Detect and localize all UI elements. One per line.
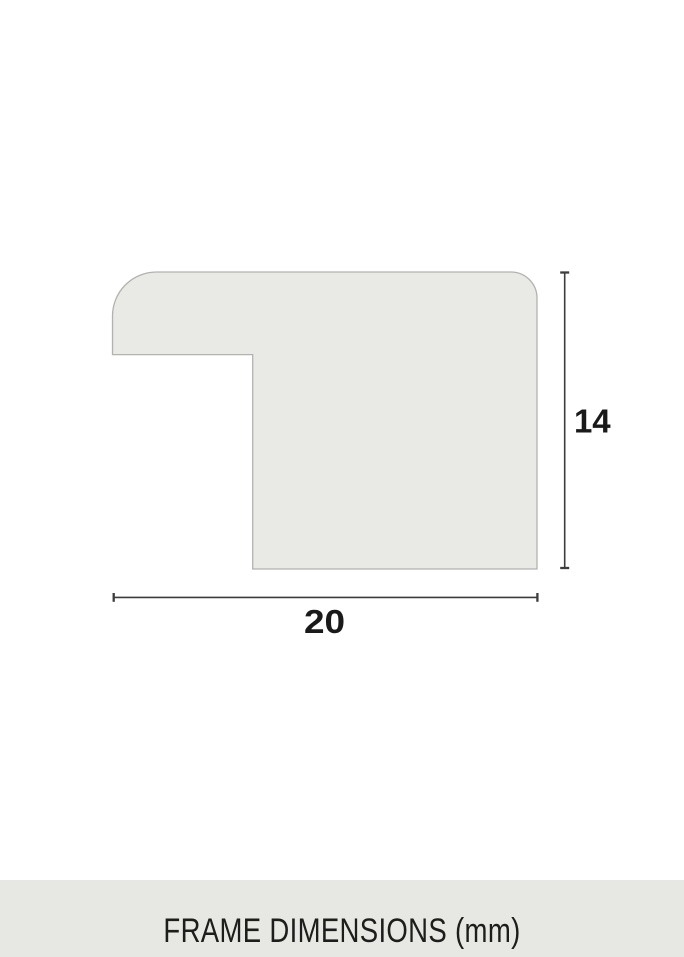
svg-text:14: 14 xyxy=(574,402,611,439)
svg-text:20: 20 xyxy=(304,604,345,641)
